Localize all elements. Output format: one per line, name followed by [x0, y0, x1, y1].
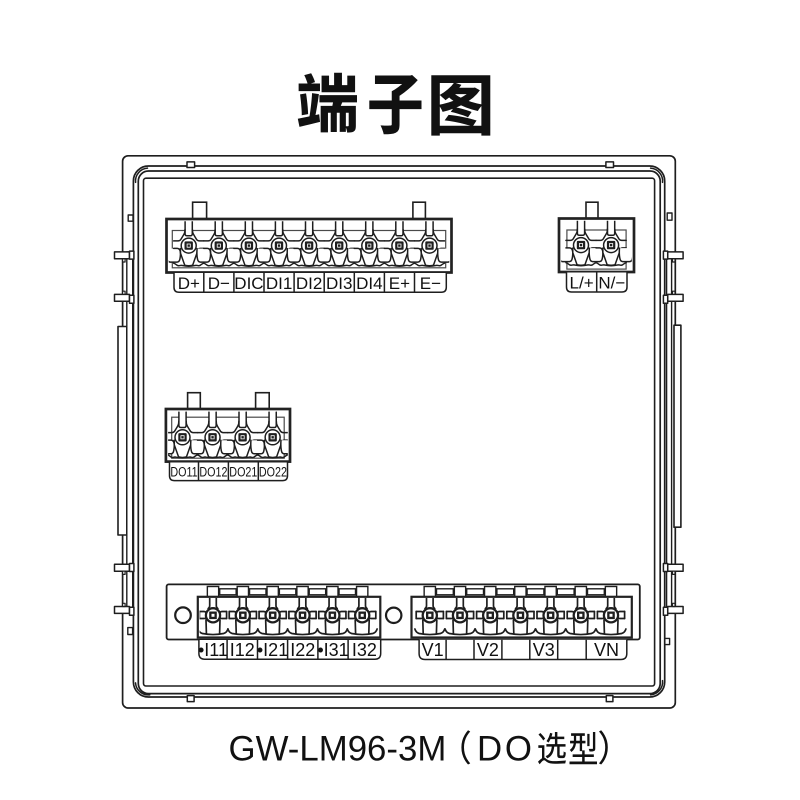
svg-text:•I21: •I21 [257, 640, 288, 660]
svg-text:I32: I32 [352, 640, 377, 660]
svg-text:VN: VN [594, 640, 619, 660]
svg-text:DO11: DO11 [170, 464, 197, 480]
svg-text:V1: V1 [422, 640, 444, 660]
svg-text:•I11: •I11 [198, 640, 228, 660]
svg-text:DI4: DI4 [356, 274, 382, 293]
svg-text:DO22: DO22 [259, 464, 287, 480]
svg-text:D+: D+ [178, 274, 200, 293]
svg-text:N/−: N/− [598, 273, 625, 292]
svg-text:I12: I12 [230, 640, 255, 660]
svg-text:D−: D− [208, 274, 230, 293]
svg-text:I22: I22 [290, 640, 315, 660]
svg-text:GW-LM96-3M: GW-LM96-3M [229, 730, 447, 769]
svg-text:V3: V3 [533, 640, 555, 660]
svg-text:DI1: DI1 [266, 274, 292, 293]
svg-text:DI3: DI3 [326, 274, 352, 293]
svg-text:DO21: DO21 [229, 464, 257, 480]
svg-text:E+: E+ [389, 274, 410, 293]
svg-text:DIC: DIC [234, 274, 263, 293]
svg-text:•I31: •I31 [317, 640, 348, 660]
svg-text:DI2: DI2 [296, 274, 322, 293]
svg-text:DO12: DO12 [199, 464, 227, 480]
svg-text:DO: DO [477, 730, 535, 769]
svg-text:L/+: L/+ [570, 273, 594, 292]
svg-text:E−: E− [420, 274, 441, 293]
svg-text:V2: V2 [477, 640, 499, 660]
